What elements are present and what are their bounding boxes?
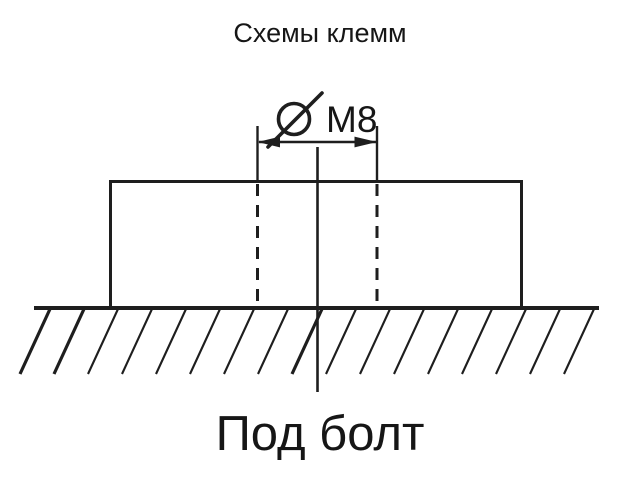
hatch-line bbox=[20, 309, 50, 374]
hatch-line bbox=[190, 309, 220, 374]
hatch-line bbox=[564, 309, 594, 374]
hatch-line bbox=[462, 309, 492, 374]
hatch-line bbox=[122, 309, 152, 374]
hatch-line bbox=[530, 309, 560, 374]
hatch-line bbox=[156, 309, 186, 374]
hatch-line bbox=[326, 309, 356, 374]
hatch-line bbox=[360, 309, 390, 374]
page: Схемы клемм bbox=[0, 0, 640, 480]
hatch-line bbox=[258, 309, 288, 374]
hatch-line bbox=[428, 309, 458, 374]
dimension-text: M8 bbox=[326, 99, 377, 140]
hatch-line bbox=[88, 309, 118, 374]
diameter-slash bbox=[268, 93, 322, 147]
hatch-line bbox=[224, 309, 254, 374]
hatch-line bbox=[54, 309, 84, 374]
diameter-symbol-icon bbox=[268, 93, 322, 147]
diagram-title: Схемы клемм bbox=[233, 18, 406, 48]
hatch-line bbox=[496, 309, 526, 374]
caption-text: Под болт bbox=[216, 407, 425, 461]
terminal-scheme-diagram: Схемы клемм bbox=[0, 0, 640, 480]
hatch-line bbox=[394, 309, 424, 374]
terminal-body-outline bbox=[111, 182, 522, 309]
ground-hatching bbox=[20, 309, 594, 374]
